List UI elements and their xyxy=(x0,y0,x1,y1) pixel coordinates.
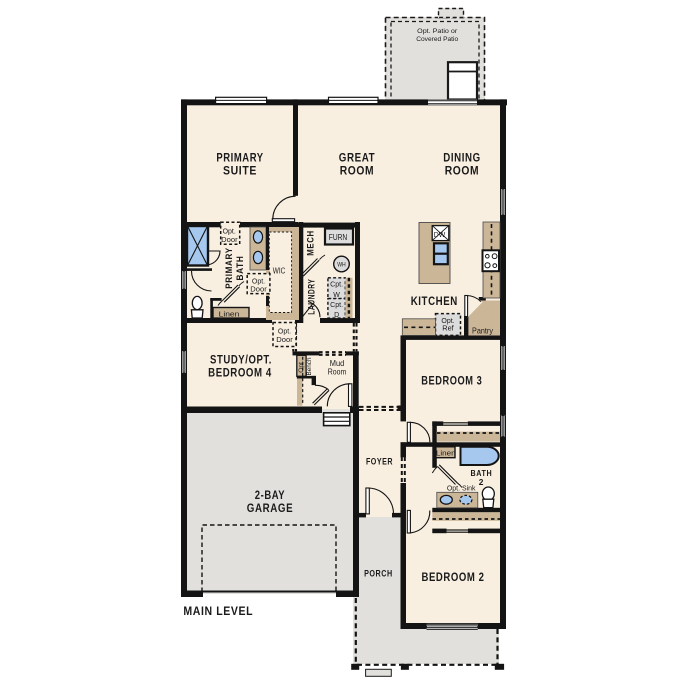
svg-text:BEDROOM 4: BEDROOM 4 xyxy=(208,366,272,379)
svg-text:D: D xyxy=(334,312,339,319)
svg-text:Bench: Bench xyxy=(306,357,313,375)
svg-text:Pantry: Pantry xyxy=(472,327,493,336)
svg-text:ROOM: ROOM xyxy=(445,164,480,177)
svg-text:BEDROOM 3: BEDROOM 3 xyxy=(421,374,482,387)
svg-text:LAUNDRY: LAUNDRY xyxy=(307,279,317,315)
svg-text:DW: DW xyxy=(434,232,446,239)
svg-text:BEDROOM 2: BEDROOM 2 xyxy=(422,571,485,584)
svg-text:WH: WH xyxy=(337,262,346,269)
svg-text:Opt.: Opt. xyxy=(278,329,291,336)
svg-text:Opt. Patio or: Opt. Patio or xyxy=(417,28,458,35)
svg-text:STUDY/OPT.: STUDY/OPT. xyxy=(210,354,272,367)
svg-text:Cpt.: Cpt. xyxy=(330,302,343,309)
svg-text:Opt. Sink: Opt. Sink xyxy=(447,484,476,493)
svg-text:Opt.: Opt. xyxy=(298,360,305,373)
svg-text:Door: Door xyxy=(276,337,293,344)
svg-text:Linen: Linen xyxy=(219,309,240,318)
svg-text:FOYER: FOYER xyxy=(366,455,393,466)
svg-text:2: 2 xyxy=(479,477,484,487)
svg-text:GARAGE: GARAGE xyxy=(247,502,293,515)
svg-text:WIC: WIC xyxy=(273,266,286,275)
svg-text:W: W xyxy=(333,292,340,299)
svg-text:ROOM: ROOM xyxy=(340,164,375,177)
svg-text:PRIMARY: PRIMARY xyxy=(216,151,263,164)
svg-text:BATH: BATH xyxy=(235,256,245,281)
svg-text:Opt.: Opt. xyxy=(441,318,454,325)
svg-text:DINING: DINING xyxy=(443,151,480,164)
svg-text:GREAT: GREAT xyxy=(339,151,376,164)
svg-text:Door: Door xyxy=(250,287,267,294)
svg-text:PORCH: PORCH xyxy=(364,568,393,579)
svg-text:Cpt.: Cpt. xyxy=(330,281,343,288)
svg-text:Opt.: Opt. xyxy=(223,229,236,236)
svg-text:PRIMARY: PRIMARY xyxy=(224,247,234,289)
svg-text:SUITE: SUITE xyxy=(223,164,257,177)
svg-text:Opt.: Opt. xyxy=(252,278,265,285)
svg-text:MECH: MECH xyxy=(306,230,316,256)
svg-text:KITCHEN: KITCHEN xyxy=(411,295,458,308)
svg-text:2-BAY: 2-BAY xyxy=(255,489,285,502)
svg-text:Covered Patio: Covered Patio xyxy=(416,36,458,43)
svg-text:Ref: Ref xyxy=(442,326,454,333)
svg-text:MAIN LEVEL: MAIN LEVEL xyxy=(183,604,253,618)
svg-text:Linen: Linen xyxy=(436,449,456,458)
svg-text:Room: Room xyxy=(328,367,347,376)
svg-text:FURN: FURN xyxy=(329,232,348,242)
svg-text:Door: Door xyxy=(221,237,238,244)
